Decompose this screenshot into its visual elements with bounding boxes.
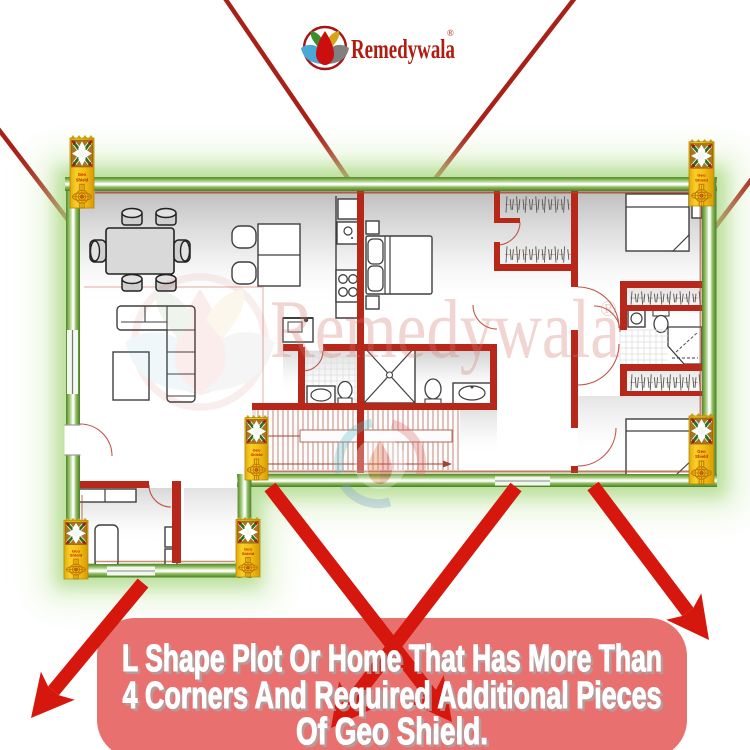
- svg-text:L Shape Plot Or Home That Has: L Shape Plot Or Home That Has More Than: [122, 638, 662, 680]
- svg-text:®: ®: [600, 296, 617, 321]
- svg-text:Of Geo Shield.: Of Geo Shield.: [296, 711, 488, 750]
- svg-text:Remedywala: Remedywala: [351, 34, 455, 64]
- svg-text:Remedywala: Remedywala: [270, 283, 620, 376]
- svg-text:®: ®: [447, 28, 454, 38]
